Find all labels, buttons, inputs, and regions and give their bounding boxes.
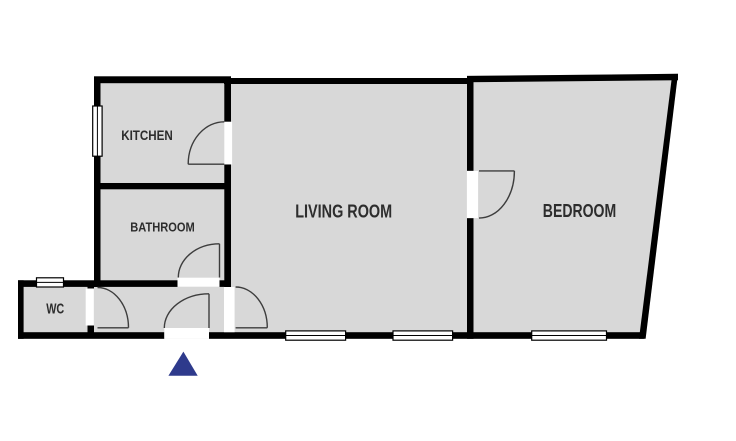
- svg-text:KITCHEN: KITCHEN: [121, 127, 173, 143]
- svg-text:LIVING ROOM: LIVING ROOM: [295, 201, 392, 222]
- svg-text:WC: WC: [46, 302, 64, 318]
- svg-text:BATHROOM: BATHROOM: [130, 220, 195, 235]
- svg-text:BEDROOM: BEDROOM: [543, 201, 616, 221]
